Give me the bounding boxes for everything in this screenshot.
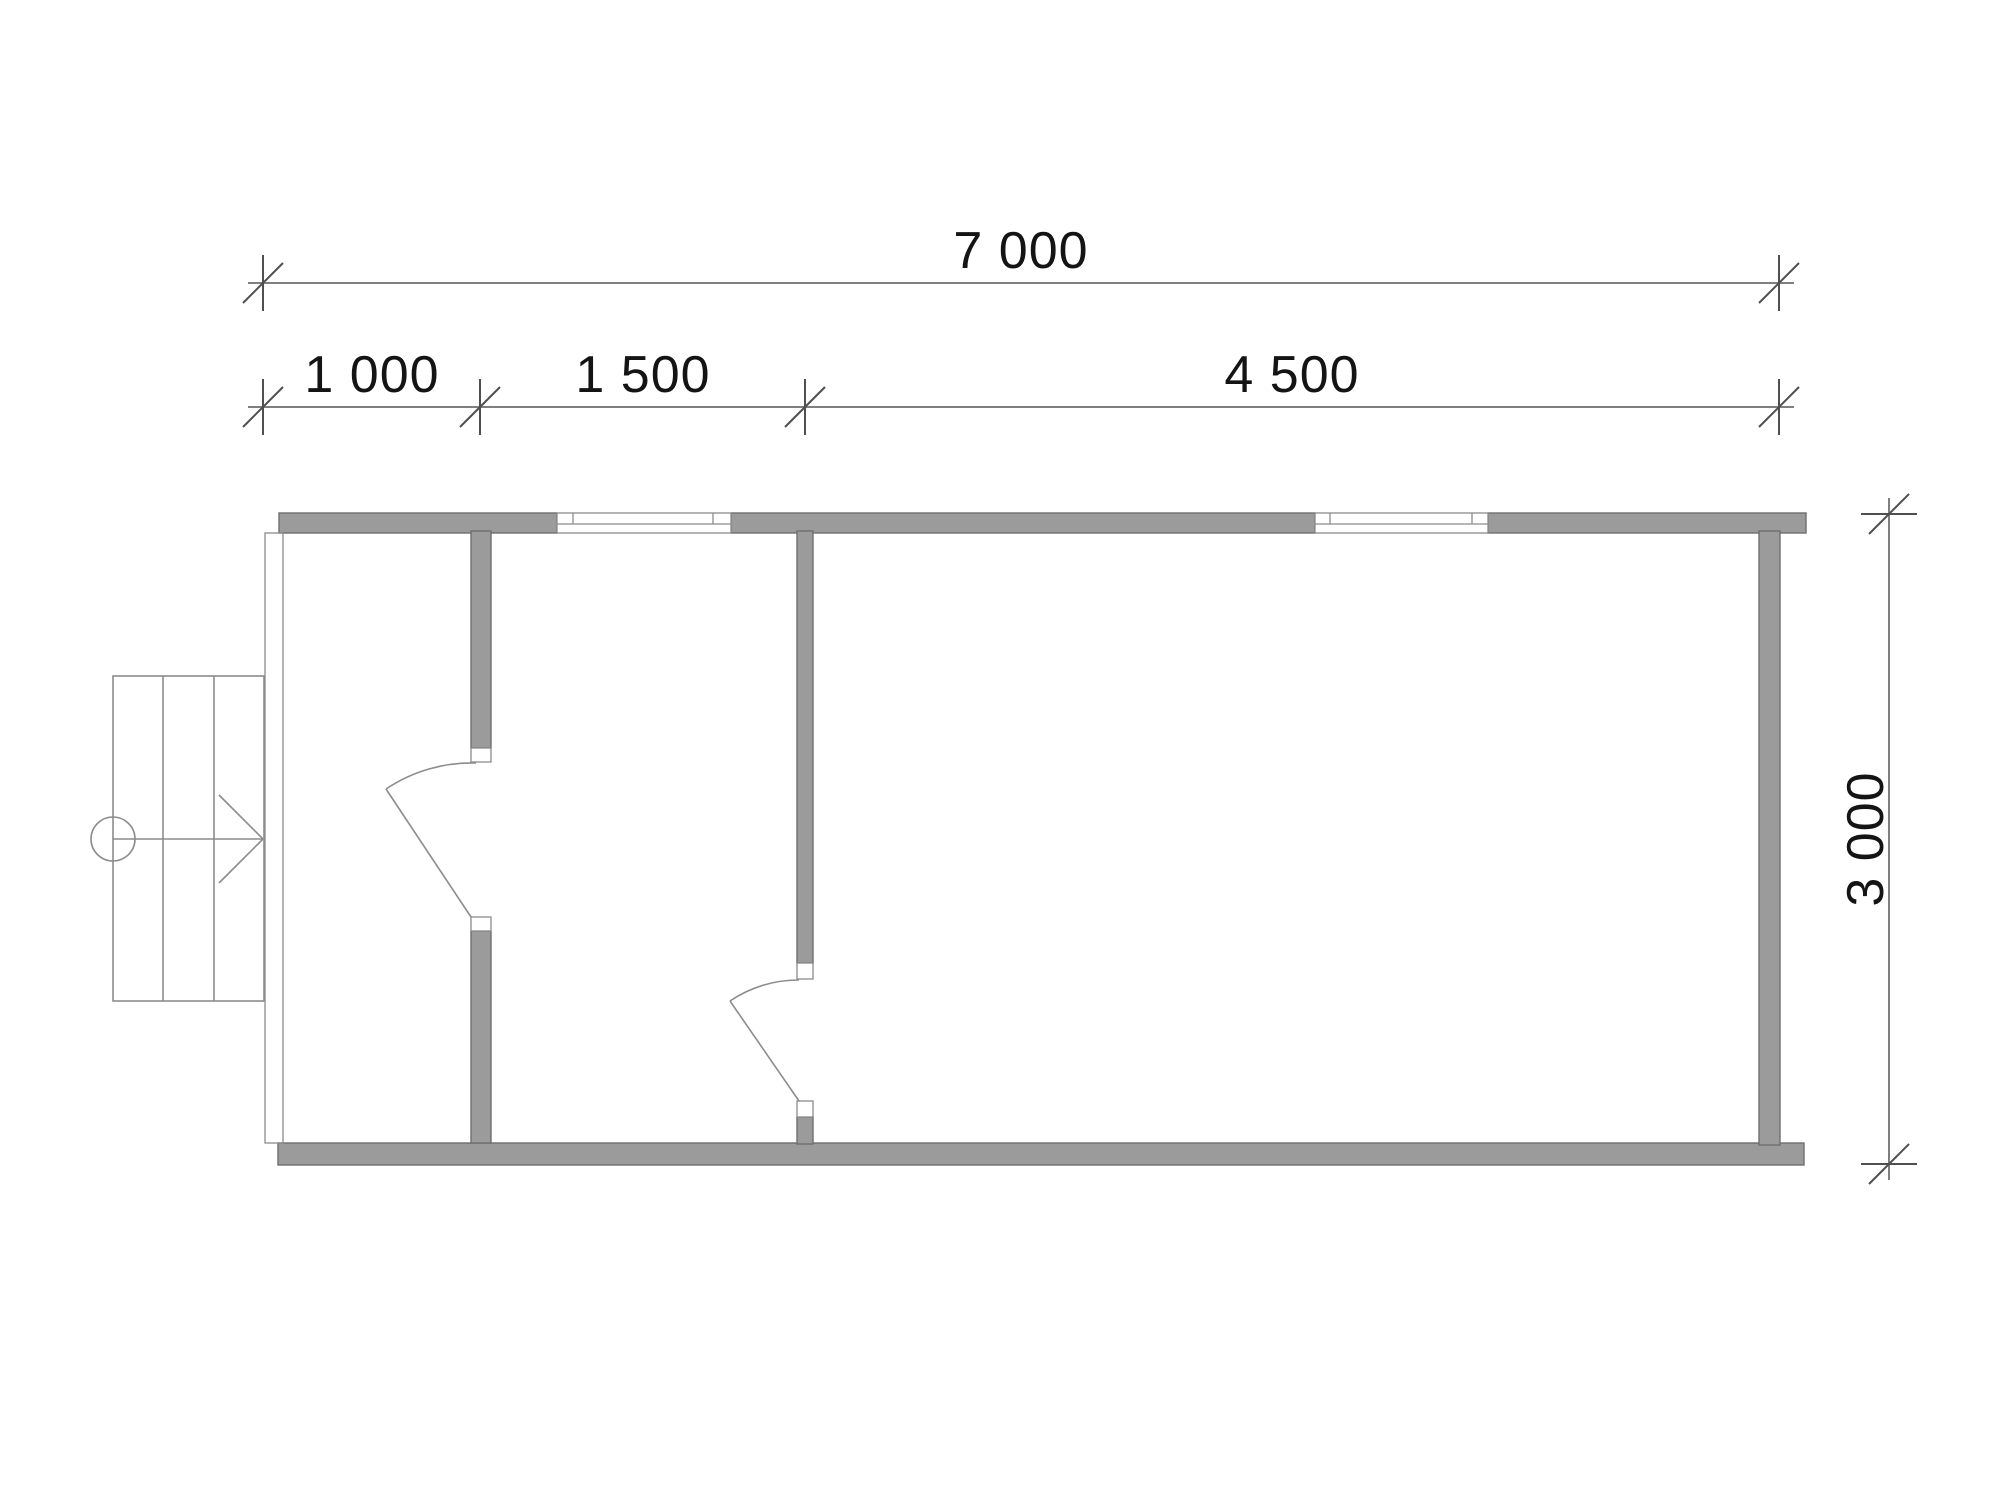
- walls: [278, 513, 1806, 1165]
- entrance-stairs: [91, 676, 264, 1001]
- exterior-wall-top-middle-segment: [731, 513, 1315, 533]
- window-1: [557, 513, 731, 533]
- door-1-jamb-top: [471, 748, 491, 762]
- exterior-wall-left-outline: [265, 533, 283, 1143]
- door-2-jamb-bottom: [797, 1101, 813, 1117]
- door-2-jamb-top: [797, 963, 813, 979]
- door-1-jamb-bottom: [471, 917, 491, 931]
- door-1: [386, 748, 491, 931]
- door-2-swing-arc: [730, 980, 799, 1001]
- doors: [386, 748, 813, 1117]
- dimension-label-overall-depth: 3 000: [1837, 771, 1895, 906]
- window-1-frame: [557, 513, 731, 533]
- dimension-label-segment-2: 1 500: [575, 346, 710, 404]
- dimension-label-segment-3: 4 500: [1224, 346, 1359, 404]
- window-2-frame: [1315, 513, 1488, 533]
- partition-wall-1-upper-segment: [471, 531, 491, 748]
- dimension-labels: 7 000 1 000 1 500 4 500 3 000: [304, 222, 1895, 907]
- door-2: [730, 963, 813, 1117]
- exterior-wall-left: [265, 533, 283, 1143]
- partition-wall-2-upper-segment: [797, 531, 813, 963]
- window-2: [1315, 513, 1488, 533]
- stairs-direction-arrow-lower: [219, 839, 263, 883]
- dimension-annotations: 7 000 1 000 1 500 4 500 3 000: [243, 222, 1917, 1184]
- exterior-wall-right: [1759, 531, 1780, 1145]
- floor-plan-drawing: 7 000 1 000 1 500 4 500 3 000: [0, 0, 2000, 1497]
- exterior-wall-top-right-segment: [1488, 513, 1806, 533]
- dimension-label-segment-1: 1 000: [304, 346, 439, 404]
- exterior-wall-bottom: [278, 1143, 1804, 1165]
- door-1-swing-arc: [386, 763, 476, 789]
- stairs-direction-arrow-upper: [219, 795, 263, 839]
- door-1-leaf: [386, 789, 471, 917]
- exterior-wall-top-left-segment: [279, 513, 557, 533]
- floor-plan-canvas: 7 000 1 000 1 500 4 500 3 000: [0, 0, 2000, 1497]
- door-2-leaf: [730, 1001, 799, 1101]
- dimension-ticks: [243, 255, 1917, 1184]
- dimension-label-overall-width: 7 000: [953, 222, 1088, 280]
- partition-wall-2-lower-stub: [797, 1117, 813, 1144]
- partition-wall-1-lower-segment: [471, 931, 491, 1143]
